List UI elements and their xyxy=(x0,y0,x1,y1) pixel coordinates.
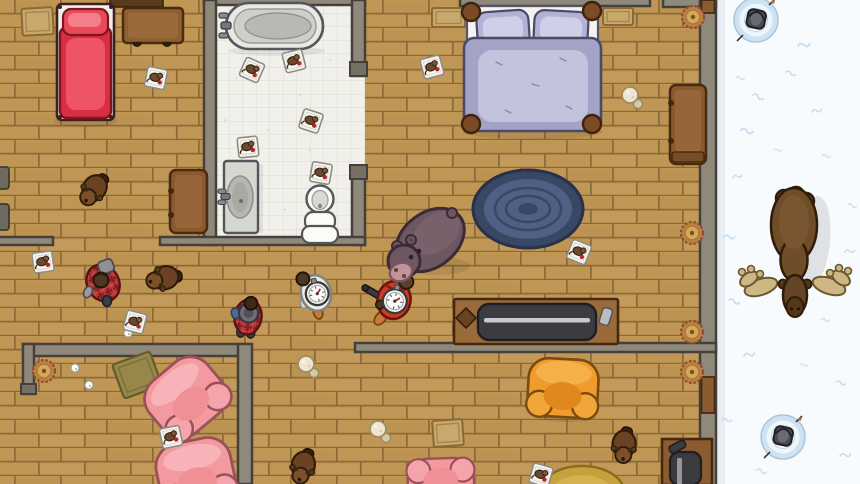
round-mat xyxy=(681,222,703,244)
bench-top-left xyxy=(110,0,163,7)
mouse-trap[interactable] xyxy=(123,310,147,334)
wall-hall-left xyxy=(0,237,53,245)
orange-armchair xyxy=(525,357,600,424)
pink-armchair-3 xyxy=(406,457,476,484)
blue-oval-rug xyxy=(473,170,583,248)
white-ball[interactable] xyxy=(71,364,79,372)
tv-cabinet xyxy=(454,299,618,344)
mouse-trap[interactable] xyxy=(32,251,55,274)
moose-muzzle xyxy=(787,297,804,317)
hunter-head xyxy=(244,296,259,311)
hippo-tail xyxy=(447,208,457,218)
mouse-trap[interactable] xyxy=(309,161,332,184)
brown-mat-with-handles xyxy=(123,8,183,47)
tan-rug-3 xyxy=(603,8,633,25)
mouse-trap[interactable] xyxy=(282,49,306,73)
tan-rug-2 xyxy=(432,8,465,27)
game-viewport[interactable] xyxy=(0,0,860,484)
hunter-head xyxy=(94,273,109,288)
bench-left xyxy=(168,170,207,233)
mouse-trap[interactable] xyxy=(144,66,168,90)
wall-bl-vertical xyxy=(238,344,252,484)
double-bed-blue xyxy=(462,2,603,139)
single-bed-red xyxy=(54,4,118,127)
mouse-trap[interactable] xyxy=(237,136,259,158)
round-mat xyxy=(682,6,704,28)
bench-right xyxy=(668,85,706,164)
mouse-trap[interactable] xyxy=(159,425,183,449)
tan-rug-4 xyxy=(432,419,464,447)
ice-hole-bucket[interactable] xyxy=(734,0,778,42)
hippo-eye xyxy=(409,255,414,260)
wall-bl-top xyxy=(23,344,247,356)
round-mat xyxy=(681,361,703,383)
hippo-eye xyxy=(417,249,422,254)
ice-hole-bucket[interactable] xyxy=(761,415,805,459)
toilet xyxy=(302,186,338,244)
tan-rug-1 xyxy=(21,7,53,36)
round-mat xyxy=(33,360,55,382)
round-mat xyxy=(681,321,703,343)
sink xyxy=(218,161,263,233)
snow-wall-shade xyxy=(716,0,725,484)
mouse-trap[interactable] xyxy=(420,55,444,79)
desk-bottom-right xyxy=(662,439,712,484)
door-right-wall[interactable] xyxy=(702,377,715,413)
white-ball[interactable] xyxy=(85,381,93,389)
